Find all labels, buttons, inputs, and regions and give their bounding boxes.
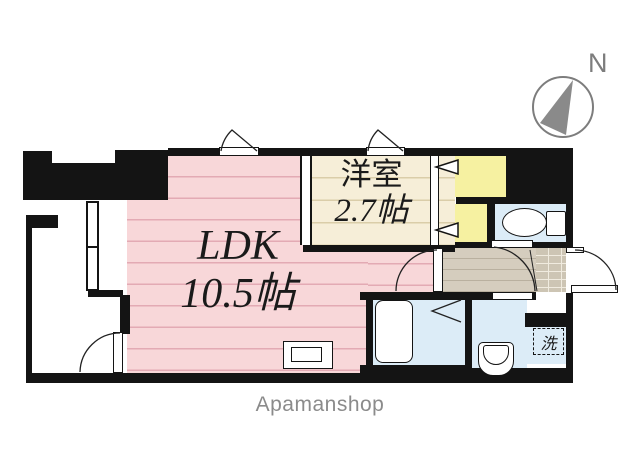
wall-right — [566, 150, 573, 248]
washer-label: 洗 — [540, 330, 556, 354]
kitchen-sink-icon — [291, 347, 322, 362]
wall — [88, 290, 123, 297]
room-ldk-label: LDK 10.5帖 — [128, 222, 348, 319]
room-western-size: 2.7帖 — [312, 193, 431, 231]
entrance-door-leaf — [571, 285, 618, 293]
wall-right — [566, 293, 573, 380]
window — [86, 201, 99, 291]
washbasin-bowl-icon — [483, 345, 509, 365]
room-western-name: 洋室 — [312, 157, 431, 193]
western-top-door-leaf — [366, 147, 405, 156]
wall — [456, 197, 506, 204]
alcove — [536, 297, 566, 313]
toilet-bowl-icon — [502, 208, 547, 237]
wall — [23, 163, 117, 200]
ldk-top-door-leaf — [219, 147, 259, 156]
closet-door-track — [430, 156, 439, 245]
entrance-tile — [536, 248, 566, 292]
wall — [366, 292, 373, 367]
room-ldk-size: 10.5帖 — [128, 270, 348, 318]
washroom-door-leaf — [492, 292, 533, 300]
closet-upper — [455, 156, 506, 197]
closet-lower — [455, 204, 487, 245]
room-ldk-strip — [368, 252, 437, 292]
wall-bottom — [360, 365, 472, 383]
floor-plan: 洗 N LDK 10.5帖 洋室 2.7帖 Apamanshop — [0, 0, 640, 455]
wall-bottom — [460, 368, 573, 383]
watermark: Apamanshop — [0, 393, 640, 417]
entrance-door-stub — [566, 247, 584, 253]
wall-bottom — [26, 373, 368, 383]
compass-icon — [533, 77, 593, 137]
ldk-hallway-door-leaf — [433, 248, 443, 292]
wall — [115, 150, 168, 200]
washbasin-icon — [478, 342, 514, 376]
window-mullion — [88, 246, 97, 248]
toilet-tank-icon — [546, 211, 566, 236]
wall-block-topright — [506, 150, 566, 204]
bathtub-icon — [375, 300, 413, 363]
toilet-door-leaf — [491, 240, 533, 248]
compass-needle-icon — [540, 80, 573, 135]
hallway — [443, 248, 536, 292]
entrance-door-arc — [575, 250, 616, 290]
balcony-door-leaf — [113, 332, 123, 373]
room-western-label: 洋室 2.7帖 — [312, 157, 431, 231]
washer-space: 洗 — [533, 328, 564, 355]
wall — [487, 197, 495, 245]
compass-north-label: N — [588, 48, 608, 79]
kitchen-counter-icon — [283, 341, 333, 369]
wall-left — [26, 215, 32, 382]
wall — [465, 298, 472, 367]
